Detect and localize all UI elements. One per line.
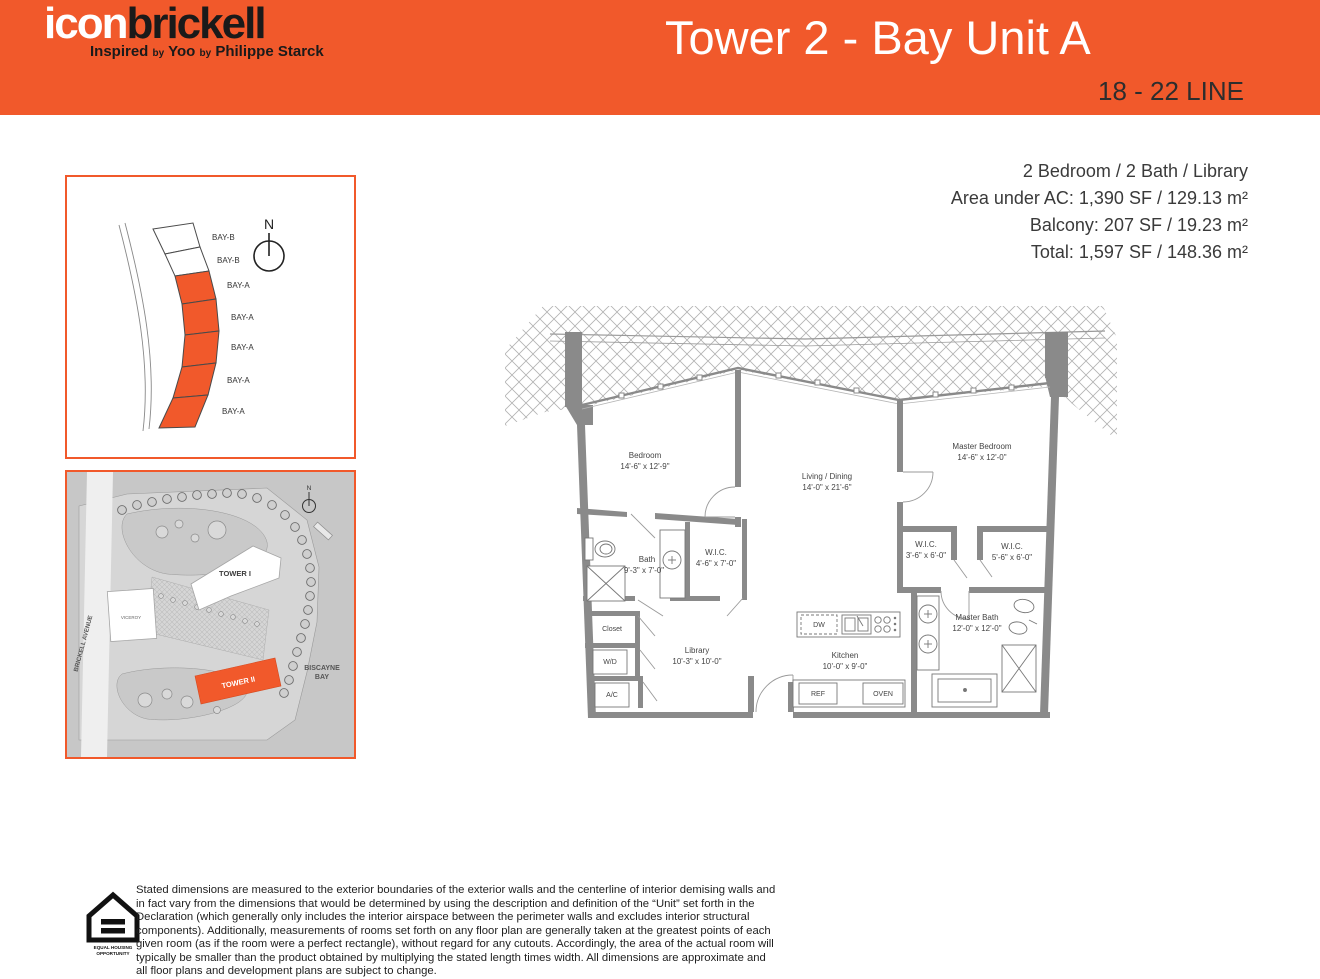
- room-name: Master Bath: [955, 613, 998, 622]
- ref-label: REF: [811, 691, 825, 698]
- key-plan-diagram: BAY-B BAY-B BAY-A BAY-A BAY-A BAY-A BAY-…: [67, 177, 354, 457]
- floor-plan-drawing: Bedroom 14'-6" x 12'-9" Living / Dining …: [505, 298, 1117, 728]
- svg-text:BAY-A: BAY-A: [231, 343, 254, 352]
- key-plan-road: [119, 223, 151, 431]
- svg-text:BAY: BAY: [315, 674, 329, 681]
- disclaimer-text: Stated dimensions are measured to the ex…: [136, 884, 776, 979]
- svg-text:BAY-A: BAY-A: [227, 281, 250, 290]
- closet-label: Closet: [602, 626, 622, 633]
- logo-part-brickell: brickell: [126, 0, 264, 48]
- bay-segment: [159, 395, 208, 428]
- balcony-area: Balcony: 207 SF / 19.23 m²: [951, 212, 1248, 239]
- line-range-label: 18 - 22 LINE: [1098, 76, 1244, 107]
- svg-text:BAY-B: BAY-B: [212, 233, 235, 242]
- area-under-ac: Area under AC: 1,390 SF / 129.13 m²: [951, 185, 1248, 212]
- svg-text:TOWER I: TOWER I: [219, 569, 251, 578]
- unit-type: 2 Bedroom / 2 Bath / Library: [951, 158, 1248, 185]
- logo-tagline: Inspired by Yoo by Philippe Starck: [90, 43, 324, 60]
- room-dims: 14'-6" x 12'-9": [620, 462, 669, 471]
- room-dims: 5'-6" x 6'-0": [992, 553, 1032, 562]
- room-dims: 12'-0" x 12'-0": [952, 624, 1001, 633]
- svg-text:OPPORTUNITY: OPPORTUNITY: [96, 951, 129, 956]
- bay-segment: [173, 363, 216, 398]
- bay-segment: [175, 271, 216, 304]
- total-area: Total: 1,597 SF / 148.36 m²: [951, 239, 1248, 266]
- room-name: Bath: [639, 555, 655, 564]
- room-dims: 14'-0" x 21'-6": [802, 483, 851, 492]
- svg-text:BISCAYNE: BISCAYNE: [304, 665, 340, 672]
- room-dims: 10'-3" x 10'-0": [672, 657, 721, 666]
- dw-label: DW: [813, 622, 825, 629]
- page-title: Tower 2 - Bay Unit A: [665, 10, 1091, 65]
- room-name: Kitchen: [832, 651, 859, 660]
- room-name: Living / Dining: [802, 472, 852, 481]
- header-band: iconbrickell Inspired by Yoo by Philippe…: [0, 0, 1320, 115]
- room-name: W.I.C.: [915, 540, 937, 549]
- north-arrow-icon: N: [254, 216, 284, 271]
- balcony-hatch: [505, 306, 1117, 440]
- room-dims: 4'-6" x 7'-0": [696, 559, 736, 568]
- room-dims: 3'-6" x 6'-0": [906, 551, 946, 560]
- bay-segment: [182, 299, 219, 335]
- svg-text:BAY-A: BAY-A: [231, 313, 254, 322]
- site-plan-map: VICEROY TOWER I TOWER II BRICKELL AVENUE…: [67, 472, 354, 757]
- brand-logo: iconbrickell: [44, 2, 265, 46]
- key-plan-box: BAY-B BAY-B BAY-A BAY-A BAY-A BAY-A BAY-…: [65, 175, 356, 459]
- room-name: Library: [685, 646, 709, 655]
- room-name: Bedroom: [629, 451, 662, 460]
- svg-text:BAY-A: BAY-A: [222, 407, 245, 416]
- room-name: Master Bedroom: [952, 442, 1011, 451]
- wd-label: W/D: [603, 659, 617, 666]
- oven-label: OVEN: [873, 691, 893, 698]
- key-plan-bays: [153, 223, 219, 428]
- floor-plan: Bedroom 14'-6" x 12'-9" Living / Dining …: [505, 298, 1117, 728]
- room-name: W.I.C.: [705, 548, 727, 557]
- site-plan-box: VICEROY TOWER I TOWER II BRICKELL AVENUE…: [65, 470, 356, 759]
- unit-summary: 2 Bedroom / 2 Bath / Library Area under …: [951, 158, 1248, 266]
- toilet-icon: [1013, 598, 1035, 614]
- svg-text:N: N: [307, 485, 312, 492]
- logo-part-icon: icon: [44, 0, 126, 48]
- svg-text:N: N: [264, 216, 274, 232]
- ac-label: A/C: [606, 692, 618, 699]
- room-dims: 14'-6" x 12'-0": [957, 453, 1006, 462]
- bay-segment: [182, 331, 219, 367]
- room-dims: 10'-0" x 9'-0": [823, 662, 868, 671]
- svg-text:BAY-B: BAY-B: [217, 256, 240, 265]
- svg-text:BAY-A: BAY-A: [227, 376, 250, 385]
- room-dims: 9'-3" x 7'-0": [624, 566, 664, 575]
- toilet-tank: [585, 538, 593, 560]
- svg-text:EQUAL HOUSING: EQUAL HOUSING: [94, 945, 133, 950]
- bidet-icon: [1008, 621, 1028, 636]
- room-name: W.I.C.: [1001, 542, 1023, 551]
- equal-housing-logo: EQUAL HOUSING OPPORTUNITY: [85, 891, 141, 957]
- svg-text:VICEROY: VICEROY: [121, 615, 141, 620]
- viceroy-building: VICEROY: [107, 588, 156, 641]
